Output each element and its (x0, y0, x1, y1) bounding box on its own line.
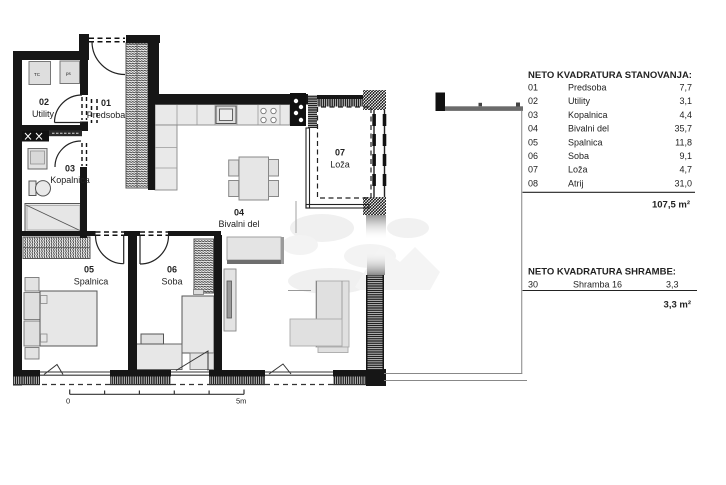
svg-text:35,7: 35,7 (674, 124, 692, 134)
svg-text:04: 04 (234, 208, 244, 218)
svg-text:Soba: Soba (161, 277, 182, 287)
svg-text:11,8: 11,8 (675, 137, 692, 147)
svg-text:31,0: 31,0 (674, 178, 692, 188)
svg-text:Bivalni del: Bivalni del (568, 124, 609, 134)
svg-text:107,5 m²: 107,5 m² (652, 200, 690, 211)
svg-text:Spalnica: Spalnica (74, 277, 109, 287)
svg-text:02: 02 (528, 96, 538, 106)
svg-text:Kopalnica: Kopalnica (50, 175, 90, 185)
svg-text:4,4: 4,4 (679, 110, 692, 120)
svg-text:08: 08 (528, 178, 538, 188)
svg-text:Predsoba: Predsoba (568, 83, 607, 93)
svg-text:02: 02 (39, 97, 49, 107)
svg-text:Loža: Loža (330, 160, 350, 170)
svg-text:04: 04 (528, 124, 538, 134)
svg-text:06: 06 (167, 265, 177, 275)
svg-text:7,7: 7,7 (679, 83, 692, 93)
svg-text:03: 03 (528, 110, 538, 120)
svg-text:Loža: Loža (568, 165, 588, 175)
svg-text:5m: 5m (236, 397, 246, 406)
svg-text:Utility: Utility (32, 109, 54, 119)
svg-text:Kopalnica: Kopalnica (568, 110, 608, 120)
svg-text:Predsoba: Predsoba (87, 110, 126, 120)
svg-text:Atrij: Atrij (568, 178, 584, 188)
svg-text:NETO KVADRATURA STANOVANJA:: NETO KVADRATURA STANOVANJA: (528, 70, 692, 81)
svg-text:Shramba 16: Shramba 16 (573, 279, 622, 289)
svg-text:01: 01 (101, 98, 111, 108)
svg-text:NETO KVADRATURA SHRAMBE:: NETO KVADRATURA SHRAMBE: (528, 267, 676, 278)
svg-text:01: 01 (528, 83, 538, 93)
svg-text:06: 06 (528, 151, 538, 161)
svg-text:05: 05 (84, 265, 94, 275)
svg-text:3,1: 3,1 (679, 96, 692, 106)
svg-text:07: 07 (528, 165, 538, 175)
svg-text:Bivalni del: Bivalni del (218, 219, 259, 229)
svg-text:Utility: Utility (568, 96, 590, 106)
svg-text:0: 0 (66, 397, 70, 406)
svg-text:Spalnica: Spalnica (568, 137, 603, 147)
svg-text:ps: ps (66, 71, 72, 76)
svg-text:3,3: 3,3 (666, 279, 679, 289)
svg-text:4,7: 4,7 (679, 165, 692, 175)
svg-text:05: 05 (528, 137, 538, 147)
svg-text:9,1: 9,1 (679, 151, 692, 161)
svg-text:30: 30 (528, 279, 538, 289)
svg-text:07: 07 (335, 148, 345, 158)
svg-text:Soba: Soba (568, 151, 589, 161)
svg-text:03: 03 (65, 164, 75, 174)
svg-text:3,3 m²: 3,3 m² (664, 300, 691, 311)
svg-text:TC: TC (34, 72, 41, 77)
